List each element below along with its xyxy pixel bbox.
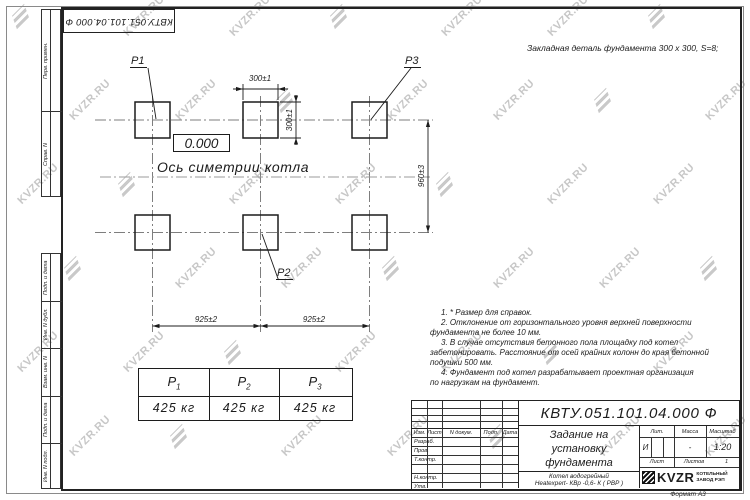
note-line: фундамента не более 10 мм. bbox=[430, 328, 720, 338]
title-block: Изм. Лист N докум. Подп. Дата Разраб. Пр… bbox=[411, 400, 740, 490]
row-empty bbox=[414, 464, 444, 473]
title-block-right: Лит. Масса Масштаб И - 1:20 Лист Листов … bbox=[639, 426, 738, 488]
brand-name: KVZR bbox=[657, 470, 694, 485]
p3-text: P3 bbox=[405, 55, 418, 67]
sheets-label: Листов bbox=[674, 457, 714, 467]
product-name: Котел водогрейный Heatexpert- КВр -0,6- … bbox=[518, 472, 639, 488]
note-line: 1. * Размер для справок. bbox=[430, 308, 720, 318]
note-line: 3. В случае отсутствия бетонного пола пл… bbox=[430, 338, 720, 348]
product-line: Котел водогрейный bbox=[535, 473, 623, 481]
centerlines bbox=[95, 96, 433, 332]
row-prov: Пров. bbox=[414, 446, 444, 455]
brand-sub-line: КОТЕЛЬНЫЙ bbox=[696, 472, 727, 478]
p2-text: P2 bbox=[277, 267, 290, 279]
loads-value-p1: 425 кг bbox=[139, 396, 209, 420]
scale-label: Масштаб bbox=[706, 426, 739, 437]
elevation-value: 0.000 bbox=[185, 136, 219, 151]
col-podp: Подп. bbox=[480, 428, 502, 437]
brand-area: KVZR КОТЕЛЬНЫЙ ЗАВОД РЭП bbox=[642, 467, 739, 488]
title-line: Задание на bbox=[545, 428, 613, 442]
notes-block: 1. * Размер для справок. 2. Отклонение о… bbox=[430, 308, 720, 388]
lit-value: И bbox=[640, 437, 651, 457]
note-line: забетонировать. Расстояние от осей крайн… bbox=[430, 348, 720, 358]
mass-value: - bbox=[674, 437, 706, 457]
mass-label: Масса bbox=[674, 426, 706, 437]
format-label: Формат А3 bbox=[638, 491, 738, 498]
loads-value-p3: 425 кг bbox=[279, 396, 351, 420]
point-label-p1: P1 bbox=[130, 55, 147, 68]
note-line: 4. Фундамент под котел разрабатывает про… bbox=[430, 368, 720, 378]
row-nkontr: Н.контр. bbox=[414, 473, 444, 482]
row-tkontr: Т.контр. bbox=[414, 455, 444, 464]
note-line: по нагрузкам на фундамент. bbox=[430, 378, 720, 388]
note-line: подушки 500 мм. bbox=[430, 358, 720, 368]
dim-300-side: 300±1 bbox=[272, 103, 306, 137]
title-line: установку bbox=[545, 442, 613, 456]
row-razrab: Разраб. bbox=[414, 437, 444, 446]
brand-sub-line: ЗАВОД РЭП bbox=[696, 478, 727, 484]
point-label-p3: P3 bbox=[404, 55, 421, 68]
embedded-part-note: Закладная деталь фундамента 300 х 300, S… bbox=[527, 43, 718, 53]
col-list: Лист bbox=[427, 428, 442, 437]
col-data: Дата bbox=[502, 428, 518, 437]
sheets-value: 1 bbox=[714, 457, 739, 467]
lit-label: Лит. bbox=[640, 426, 674, 437]
doc-number: КВТУ.051.101.04.000 Ф bbox=[518, 401, 739, 426]
loads-table: Р1 Р2 Р3 425 кг 425 кг 425 кг bbox=[138, 368, 353, 421]
title-line: фундамента bbox=[545, 456, 613, 470]
sheet-label: Лист bbox=[640, 457, 674, 467]
p1-text: P1 bbox=[131, 55, 144, 67]
loads-header-p2: Р2 bbox=[209, 369, 279, 396]
loads-header-p3: Р3 bbox=[279, 369, 351, 396]
kvzr-logo-icon bbox=[642, 471, 655, 484]
dim-300-top: 300±1 bbox=[232, 74, 288, 83]
product-line: Heatexpert- КВр -0,6- К ( РВР ) bbox=[535, 480, 623, 488]
drawing-title: Задание на установку фундамента bbox=[518, 426, 639, 472]
elevation-mark: 0.000 bbox=[173, 134, 230, 152]
loads-header-p1: Р1 bbox=[139, 369, 209, 396]
note-line: 2. Отклонение от горизонтального уровня … bbox=[430, 318, 720, 328]
col-izm: Изм. bbox=[412, 428, 427, 437]
leader-p3 bbox=[371, 68, 411, 120]
dim-960: 960±3 bbox=[403, 159, 439, 193]
scale-value: 1:20 bbox=[706, 437, 739, 457]
brand-subtitle: КОТЕЛЬНЫЙ ЗАВОД РЭП bbox=[696, 472, 727, 483]
drawing-sheet: KVZR.RUKVZR.RUKVZR.RUKVZR.RUKVZR.RUKVZR.… bbox=[0, 0, 750, 500]
col-ndocum: N докум. bbox=[442, 428, 480, 437]
symmetry-axis-label: Ось симетрии котла bbox=[157, 159, 309, 175]
dim-925-left: 925±2 bbox=[178, 315, 234, 324]
row-utv: Утв. bbox=[414, 482, 444, 491]
loads-value-p2: 425 кг bbox=[209, 396, 279, 420]
point-label-p2: P2 bbox=[276, 267, 293, 280]
dim-925-right: 925±2 bbox=[286, 315, 342, 324]
